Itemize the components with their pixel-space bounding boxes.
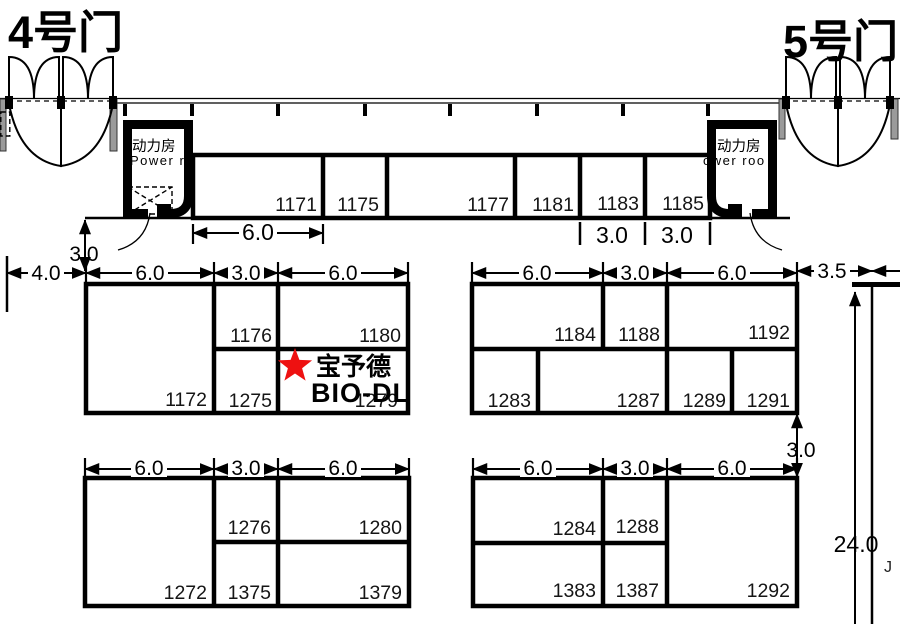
dim-label: 6.0 bbox=[523, 457, 552, 480]
power-room-subtitle: ower roo bbox=[703, 153, 766, 168]
dim-bottom-left: 6.0 3.0 6.0 bbox=[85, 457, 409, 480]
dim-left-v3: 3.0 bbox=[69, 220, 98, 271]
booth-row-top: 1171 1175 1177 1181 1183 1185 bbox=[193, 155, 710, 218]
dim-bottom-right: 6.0 3.0 6.0 bbox=[473, 457, 797, 480]
power-room-right: 动力房 ower roo bbox=[703, 120, 782, 250]
dim-label: 6.0 bbox=[522, 262, 551, 285]
booth-label: 1172 bbox=[165, 389, 207, 411]
booth-label: 1177 bbox=[467, 194, 509, 216]
dim-label: 3.0 bbox=[661, 222, 693, 248]
power-room-left: 动力房 Power ro bbox=[118, 120, 194, 250]
floor-plan-page: 4号门 5号门 bbox=[0, 0, 900, 624]
dim-label: 3.0 bbox=[596, 222, 628, 248]
block-bottom-right: 1284 1288 1292 1383 1387 bbox=[473, 478, 797, 606]
booth-label: 1184 bbox=[554, 324, 596, 346]
dim-label: 3.0 bbox=[620, 457, 649, 480]
booth-label: 1192 bbox=[748, 322, 790, 344]
dim-label: 3.0 bbox=[786, 439, 815, 462]
edge-mark: J bbox=[884, 559, 892, 576]
dim-label: 6.0 bbox=[717, 457, 746, 480]
right-wall bbox=[852, 285, 900, 624]
booth-label: 1171 bbox=[275, 194, 317, 216]
dim-label: 6.0 bbox=[242, 219, 274, 245]
booth-label: 1284 bbox=[553, 518, 597, 540]
dim-label: 6.0 bbox=[328, 262, 357, 285]
dim-label: 6.0 bbox=[135, 262, 164, 285]
booth-label: 1383 bbox=[553, 580, 596, 602]
booth-label: 1387 bbox=[616, 580, 659, 602]
block-bottom-left: 1272 1276 1280 1375 1379 bbox=[85, 478, 409, 606]
block-mid-right: 1184 1188 1192 1283 1287 1289 1291 bbox=[472, 284, 797, 413]
dim-label: 3.5 bbox=[817, 260, 846, 283]
dim-label: 3.0 bbox=[231, 262, 260, 285]
dim-label: 3.0 bbox=[620, 262, 649, 285]
dim-right-v3: 3.0 bbox=[786, 414, 815, 477]
dim-top-3s: 3.0 3.0 bbox=[580, 222, 710, 248]
gate4-title: 4号门 bbox=[8, 7, 123, 58]
wall-column-ticks bbox=[125, 104, 708, 116]
booth-label: 1289 bbox=[683, 390, 726, 412]
dim-right-35: 3.5 bbox=[797, 260, 900, 283]
booth-label: 1188 bbox=[618, 324, 660, 346]
booth-label: 1275 bbox=[229, 390, 273, 412]
booth-label: 1185 bbox=[662, 193, 704, 215]
exhibitor-name-en: BIO-DL bbox=[311, 378, 410, 408]
booth-label: 1276 bbox=[228, 517, 271, 539]
booth-label: 1375 bbox=[228, 582, 272, 604]
dim-top-6: 6.0 bbox=[193, 219, 323, 245]
power-room-subtitle: Power ro bbox=[130, 153, 194, 168]
booth-label: 1291 bbox=[747, 390, 790, 412]
top-wall bbox=[0, 99, 900, 117]
booth-label: 1283 bbox=[488, 390, 531, 412]
booth-label: 1181 bbox=[532, 194, 574, 216]
dim-mid-left: 6.0 3.0 6.0 bbox=[86, 262, 408, 285]
booth-label: 1287 bbox=[617, 390, 660, 412]
exhibitor-marker: 宝予德 BIO-DL bbox=[278, 348, 410, 408]
booth-label: 1280 bbox=[359, 517, 403, 539]
floor-plan: 4号门 5号门 bbox=[0, 0, 900, 624]
dim-label: 6.0 bbox=[134, 457, 163, 480]
gate4-doors bbox=[0, 57, 117, 166]
booth-label: 1176 bbox=[230, 325, 272, 347]
booth-label: 1379 bbox=[359, 582, 402, 604]
dim-label: 4.0 bbox=[31, 262, 60, 285]
booth-label: 1180 bbox=[359, 325, 401, 347]
dim-label: 6.0 bbox=[717, 262, 746, 285]
booth-label: 1288 bbox=[616, 516, 659, 538]
exhibitor-name-cn: 宝予德 bbox=[316, 352, 391, 381]
star-icon bbox=[278, 348, 312, 381]
gate5-doors bbox=[779, 57, 898, 166]
booth-label: 1272 bbox=[164, 582, 207, 604]
dim-label: 3.0 bbox=[231, 457, 260, 480]
dim-label: 3.0 bbox=[69, 243, 98, 266]
booth-label: 1175 bbox=[337, 194, 379, 216]
door-jamb bbox=[728, 204, 742, 218]
dimensions: 6.0 3.0 3.0 3.0 4.0 bbox=[7, 219, 900, 624]
dim-label: 6.0 bbox=[328, 457, 357, 480]
booth-label: 1183 bbox=[597, 193, 639, 215]
booth-label: 1292 bbox=[747, 580, 790, 602]
dim-mid-right: 6.0 3.0 6.0 bbox=[472, 262, 797, 285]
